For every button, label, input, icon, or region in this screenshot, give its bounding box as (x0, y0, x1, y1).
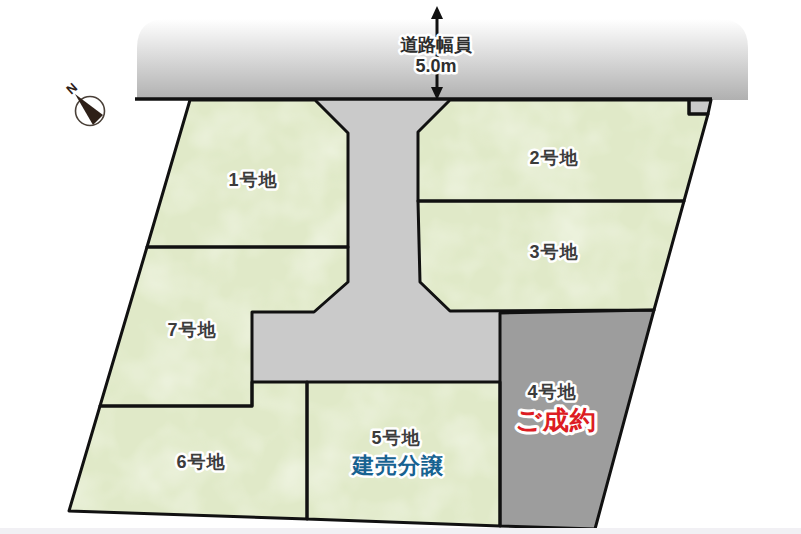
lot-5-label: 5号地 (371, 428, 420, 448)
lot-4-status: ご成約 (515, 405, 597, 435)
lot-4-label: 4号地 (527, 382, 576, 402)
lot-6-label: 6号地 (176, 452, 225, 472)
road-width-label: 道路幅員 (400, 35, 472, 55)
lot-7-label: 7号地 (167, 320, 216, 340)
compass-north-label: N (63, 80, 80, 97)
lot-layout-diagram: N 道路幅員 5.0m 1号地 2号地 3号地 4号地 ご成約 5号地 建売分譲… (0, 0, 801, 534)
road-width-value: 5.0m (415, 56, 456, 76)
arrow-up-icon (431, 6, 443, 19)
compass: N (63, 80, 104, 126)
lot-2-label: 2号地 (529, 148, 578, 168)
lot-1-label: 1号地 (228, 170, 277, 190)
lot-3-label: 3号地 (529, 242, 578, 262)
site-plan: N 道路幅員 5.0m 1号地 2号地 3号地 4号地 ご成約 5号地 建売分譲… (0, 0, 801, 534)
lot-5-sale-type: 建売分譲 (350, 453, 444, 478)
footer-strip (0, 528, 801, 534)
